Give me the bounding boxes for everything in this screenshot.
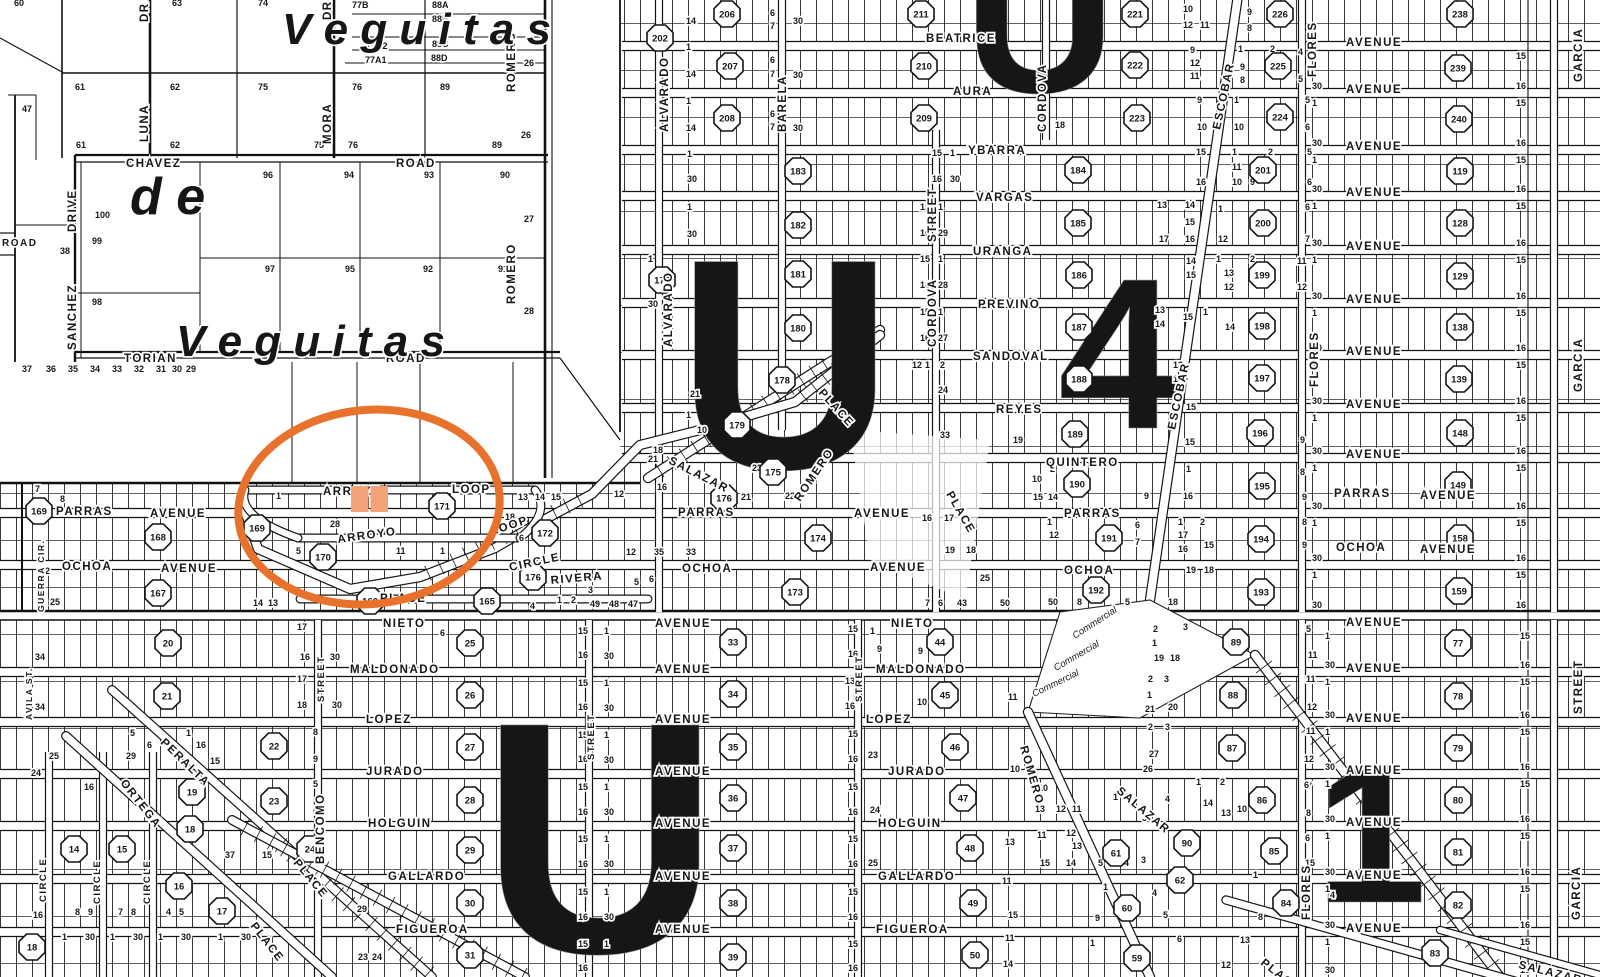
lot-number: 18 bbox=[1204, 565, 1214, 575]
lot-number: 37 bbox=[225, 850, 235, 860]
lot-number: 6 bbox=[770, 8, 775, 18]
block-number-badge: 62 bbox=[1167, 867, 1193, 893]
block-corner-lot-number: 15 bbox=[1516, 155, 1526, 165]
street-name-label: AVENUE bbox=[854, 508, 910, 520]
lot-number: 23 bbox=[358, 952, 368, 962]
lot-number: 1 bbox=[686, 42, 691, 52]
lot-number: 1 bbox=[686, 410, 691, 420]
block-corner-lot-number: 16 bbox=[1516, 238, 1526, 248]
block-number: 119 bbox=[1452, 166, 1467, 177]
block-number-badge: 172 bbox=[532, 520, 558, 546]
lot-number: 1 bbox=[1218, 204, 1223, 214]
street-name-label: FIGUEROA bbox=[396, 924, 469, 936]
block-number: 88 bbox=[1228, 690, 1239, 701]
lot-number: 15 bbox=[920, 254, 930, 264]
lot-number: 15 bbox=[1185, 437, 1195, 447]
lot-number: 15 bbox=[1185, 217, 1195, 227]
block-number-badge: 46 bbox=[942, 734, 968, 760]
block-number: 86 bbox=[1257, 795, 1268, 806]
lot-number: 25 bbox=[980, 573, 990, 583]
lot-number: 30 bbox=[330, 652, 340, 662]
block-number: 48 bbox=[965, 843, 976, 854]
lot-number: 15 bbox=[1186, 402, 1196, 412]
block-number-badge: 185 bbox=[1065, 210, 1091, 236]
block-number: 169 bbox=[31, 506, 47, 517]
lot-number: 6 bbox=[1304, 780, 1309, 790]
block-corner-lot-number: 1 bbox=[1312, 518, 1317, 528]
street-name-label: AVENUE bbox=[655, 618, 711, 630]
lot-number: 3 bbox=[588, 585, 593, 595]
block-number: 14 bbox=[69, 844, 80, 855]
lot-number: 15 bbox=[1186, 270, 1196, 280]
lot-number: 9 bbox=[1240, 62, 1245, 72]
lot-number: 13 bbox=[1035, 804, 1045, 814]
lot-number: 15 bbox=[210, 756, 220, 766]
lot-number: 10 bbox=[917, 697, 927, 707]
lot-number: 24 bbox=[870, 805, 880, 815]
lot-number: 1 bbox=[938, 254, 943, 264]
street-name-label: MORA bbox=[322, 103, 334, 144]
block-number: 45 bbox=[940, 690, 951, 701]
lot-number: 61 bbox=[76, 140, 86, 150]
lot-number: 20 bbox=[1168, 702, 1178, 712]
lot-number: 9 bbox=[313, 754, 318, 764]
lot-number: 6 bbox=[147, 740, 152, 750]
block-corner-lot-number: 1 bbox=[1312, 570, 1317, 580]
lot-number: 5 bbox=[179, 907, 184, 917]
lot-number: 49 bbox=[590, 599, 600, 609]
lot-number: 5 bbox=[1305, 95, 1310, 105]
lot-number: 15 bbox=[848, 834, 858, 844]
lot-number: 3 bbox=[1141, 855, 1146, 865]
block-number-badge: 44 bbox=[927, 629, 953, 655]
block-corner-lot-number: 1 bbox=[1312, 98, 1317, 108]
lot-number: 31 bbox=[156, 364, 166, 374]
lot-number: 16 bbox=[33, 910, 43, 920]
lot-number: 2 bbox=[1148, 722, 1153, 732]
lot-number: 12 bbox=[1056, 804, 1066, 814]
lot-number: 12 bbox=[1049, 530, 1059, 540]
block-number: 193 bbox=[1253, 587, 1269, 598]
block-number: 208 bbox=[719, 113, 735, 124]
lot-number: 30 bbox=[133, 932, 143, 942]
lot-number: 14 bbox=[1155, 319, 1165, 329]
block-number-badge: 35 bbox=[720, 734, 746, 760]
street-name-label: DR bbox=[139, 2, 151, 22]
block-corner-lot-number: 1 bbox=[1325, 937, 1330, 947]
block-number: 189 bbox=[1067, 429, 1083, 440]
lot-number: 94 bbox=[344, 170, 354, 180]
block-number-badge: 178 bbox=[769, 367, 795, 393]
block-number-badge: 37 bbox=[720, 835, 746, 861]
lot-number: 1 bbox=[1178, 517, 1183, 527]
block-number-badge: 192 bbox=[1083, 577, 1109, 603]
block-number-badge: 26 bbox=[457, 682, 483, 708]
lot-number: 12 bbox=[1066, 828, 1076, 838]
block-number: 30 bbox=[465, 898, 476, 909]
block-number-badge: 139 bbox=[1446, 366, 1472, 392]
lot-number: 92 bbox=[423, 264, 433, 274]
lot-number: 75 bbox=[258, 82, 268, 92]
block-number: 200 bbox=[1255, 218, 1271, 229]
lot-number: 16 bbox=[848, 754, 858, 764]
block-number-badge: 197 bbox=[1249, 365, 1275, 391]
lot-number: 9 bbox=[1302, 492, 1307, 502]
block-number: 211 bbox=[913, 9, 929, 20]
lot-number: 1 bbox=[604, 678, 609, 688]
block-number: 240 bbox=[1451, 114, 1467, 125]
lot-number: 32 bbox=[134, 364, 144, 374]
block-number: 138 bbox=[1452, 322, 1468, 333]
lot-number: 16 bbox=[578, 963, 588, 973]
lot-number: 89 bbox=[492, 140, 502, 150]
block-corner-lot-number: 15 bbox=[1516, 463, 1526, 473]
lot-number: 8 bbox=[131, 907, 136, 917]
lot-number: 9 bbox=[1247, 7, 1252, 17]
lot-number: 5 bbox=[1298, 74, 1303, 84]
lot-number: 47 bbox=[22, 104, 32, 114]
lot-number: 33 bbox=[940, 430, 950, 440]
block-number: 33 bbox=[728, 637, 739, 648]
block-number: 27 bbox=[465, 742, 476, 753]
block-corner-lot-number: 16 bbox=[1516, 446, 1526, 456]
block-corner-lot-number: 15 bbox=[1516, 360, 1526, 370]
block-number: 79 bbox=[1453, 743, 1464, 754]
lot-number: 30 bbox=[604, 755, 614, 765]
block-number-badge: 129 bbox=[1447, 263, 1473, 289]
lot-number: 5 bbox=[130, 728, 135, 738]
lot-number: 30 bbox=[181, 932, 191, 942]
tract-name-script: V e g u i t a s bbox=[176, 317, 445, 366]
street-name-label: AVENUE bbox=[655, 714, 711, 726]
block-number: 171 bbox=[434, 501, 451, 512]
lot-number: 35 bbox=[68, 364, 78, 374]
lot-number: 23 bbox=[868, 750, 878, 760]
lot-number: 16 bbox=[578, 859, 588, 869]
street-name-label: BEATRICE bbox=[926, 33, 996, 45]
block-corner-lot-number: 30 bbox=[1312, 501, 1322, 511]
block-number-badge: 148 bbox=[1447, 420, 1473, 446]
lot-number: 17 bbox=[944, 513, 954, 523]
lot-number: 17 bbox=[1178, 530, 1188, 540]
lot-number: 16 bbox=[578, 702, 588, 712]
block-corner-lot-number: 1 bbox=[1325, 831, 1330, 841]
block-number: 176 bbox=[716, 493, 732, 504]
lot-number: 5 bbox=[1098, 858, 1103, 868]
block-number-badge: 174 bbox=[805, 525, 831, 551]
lot-number: 10 bbox=[1183, 4, 1193, 14]
street-name-label: PARRAS bbox=[678, 507, 735, 519]
street-name-label: AVENUE bbox=[1346, 617, 1402, 629]
block-corner-lot-number: 1 bbox=[1312, 201, 1317, 211]
street-name-label: PARRAS bbox=[1334, 488, 1391, 500]
street-name-label: STREET bbox=[854, 656, 865, 702]
lot-number: 4 bbox=[1152, 888, 1157, 898]
lot-number: 2 bbox=[571, 595, 576, 605]
lot-number: 15 bbox=[1196, 147, 1206, 157]
block-corner-lot-number: 30 bbox=[1325, 965, 1335, 975]
block-number-badge: 33 bbox=[720, 629, 746, 655]
block-number: 90 bbox=[1182, 838, 1193, 849]
block-corner-lot-number: 1 bbox=[1312, 308, 1317, 318]
lot-number: 16 bbox=[848, 859, 858, 869]
block-number-badge: 170 bbox=[310, 544, 336, 570]
lot-number: 5 bbox=[1306, 624, 1311, 634]
block-number: 61 bbox=[1111, 848, 1122, 859]
block-number: 81 bbox=[1453, 847, 1464, 858]
block-number-badge: 239 bbox=[1445, 55, 1471, 81]
block-number-badge: 186 bbox=[1066, 262, 1092, 288]
block-number-badge: 119 bbox=[1447, 158, 1473, 184]
lot-number: 19 bbox=[1154, 653, 1164, 663]
block-number: 178 bbox=[774, 375, 790, 386]
block-number-badge: 188 bbox=[1066, 366, 1092, 392]
block-number: 20 bbox=[163, 638, 174, 649]
lot-number: 19 bbox=[1186, 565, 1196, 575]
block-corner-lot-number: 15 bbox=[1520, 677, 1530, 687]
lot-number: 30 bbox=[85, 932, 95, 942]
block-corner-lot-number: 15 bbox=[1516, 98, 1526, 108]
block-number: 31 bbox=[465, 950, 476, 961]
block-number-badge: 88 bbox=[1220, 682, 1246, 708]
street-name-label: AVENUE bbox=[1346, 449, 1402, 461]
block-number: 47 bbox=[958, 793, 969, 804]
lot-number: 9 bbox=[1197, 95, 1202, 105]
block-corner-lot-number: 16 bbox=[1520, 660, 1530, 670]
lot-number: 27 bbox=[938, 333, 948, 343]
street-name-label: STREET bbox=[316, 656, 327, 702]
lot-number: 50 bbox=[1000, 598, 1010, 608]
highlighted-parcel bbox=[371, 486, 389, 512]
lot-number: 1 bbox=[1186, 464, 1191, 474]
lot-number: 13 bbox=[1224, 268, 1234, 278]
block-corner-lot-number: 30 bbox=[1312, 138, 1322, 148]
lot-number: 93 bbox=[424, 170, 434, 180]
block-corner-lot-number: 1 bbox=[1312, 155, 1317, 165]
lot-number: 7 bbox=[1305, 234, 1310, 244]
block-number-badge: 17 bbox=[209, 898, 235, 924]
lot-number: 16 bbox=[1185, 234, 1195, 244]
lot-number: 10 bbox=[1237, 804, 1247, 814]
lot-number: 1 bbox=[1152, 638, 1157, 648]
lot-number: 1 bbox=[1234, 95, 1239, 105]
block-number: 223 bbox=[1129, 113, 1145, 124]
block-corner-lot-number: 1 bbox=[1325, 884, 1330, 894]
block-number: 18 bbox=[185, 824, 196, 835]
lot-number: 14 bbox=[1185, 200, 1195, 210]
lot-number: 11 bbox=[1306, 726, 1316, 736]
block-number-badge: 221 bbox=[1122, 1, 1148, 27]
block-number-badge: 22 bbox=[261, 733, 287, 759]
lot-number: 34 bbox=[35, 702, 45, 712]
lot-number: 11 bbox=[1232, 162, 1242, 172]
lot-number: 30 bbox=[604, 859, 614, 869]
lot-number: 4 bbox=[1165, 794, 1170, 804]
lot-number: 10 bbox=[1197, 122, 1207, 132]
lot-number: 13 bbox=[268, 598, 278, 608]
lot-number: 1 bbox=[276, 491, 281, 501]
lot-number: 30 bbox=[793, 70, 803, 80]
lot-number: 16 bbox=[300, 652, 310, 662]
block-number-badge: 194 bbox=[1248, 526, 1274, 552]
block-number: 49 bbox=[968, 898, 979, 909]
lot-number: 2 bbox=[1200, 517, 1205, 527]
street-name-label: MALDONADO bbox=[876, 664, 966, 676]
lot-number: 1 bbox=[604, 626, 609, 636]
block-number-badge: 159 bbox=[1446, 578, 1472, 604]
block-number-badge: 27 bbox=[457, 734, 483, 760]
lot-number: 18 bbox=[1170, 653, 1180, 663]
lot-number: 7 bbox=[770, 69, 775, 79]
lot-number: 100 bbox=[95, 210, 110, 220]
lot-number: 28 bbox=[524, 306, 534, 316]
street-name-label: REYES bbox=[996, 404, 1043, 416]
lot-number: 15 bbox=[578, 678, 588, 688]
block-number: 129 bbox=[1452, 271, 1468, 282]
lot-number: 21 bbox=[1145, 704, 1155, 714]
lot-number: 30 bbox=[950, 174, 960, 184]
street-name-label: AVENUE bbox=[1346, 765, 1402, 777]
street-name-label: GARCIA bbox=[1573, 28, 1585, 82]
block-corner-lot-number: 30 bbox=[1325, 710, 1335, 720]
lot-number: 11 bbox=[1072, 804, 1082, 814]
block-number: 190 bbox=[1069, 479, 1085, 490]
street-name-label: LOPEZ bbox=[366, 714, 412, 726]
lot-number: 2 bbox=[1250, 254, 1255, 264]
block-number: 185 bbox=[1070, 218, 1087, 229]
map-canvas: U4U1U 60637477B88A88B77A288C77A188D26616… bbox=[0, 0, 1600, 977]
block-number: 179 bbox=[729, 420, 745, 431]
lot-number: 16 bbox=[1178, 544, 1188, 554]
street-name-label: ROAD bbox=[2, 238, 37, 249]
block-number: 77 bbox=[1453, 638, 1464, 649]
lot-number: 15 bbox=[578, 834, 588, 844]
block-number-badge: 211 bbox=[908, 1, 934, 27]
block-number-badge: 85 bbox=[1261, 838, 1287, 864]
lot-number: 1 bbox=[925, 360, 930, 370]
block-number-badge: 84 bbox=[1273, 890, 1299, 916]
street-name-label: SANCHEZ bbox=[67, 284, 79, 350]
block-number-badge: 173 bbox=[782, 579, 808, 605]
block-number-badge: 223 bbox=[1124, 105, 1150, 131]
block-corner-lot-number: 15 bbox=[1520, 937, 1530, 947]
lot-number: 13 bbox=[1005, 837, 1015, 847]
block-number-badge: 168 bbox=[145, 524, 171, 550]
block-number-badge: 80 bbox=[1445, 787, 1471, 813]
block-number: 186 bbox=[1071, 270, 1087, 281]
lot-number: 24 bbox=[372, 952, 382, 962]
block-number-badge: 224 bbox=[1267, 104, 1293, 130]
lot-number: 16 bbox=[1183, 491, 1193, 501]
street-name-label: GUERRA CIR. bbox=[36, 540, 46, 612]
lot-number: 7 bbox=[770, 122, 775, 132]
block-number: 221 bbox=[1127, 9, 1144, 20]
lot-number: 1 bbox=[1253, 870, 1258, 880]
street-name-label: OCHOA bbox=[1064, 565, 1114, 577]
lot-number: 15 bbox=[1040, 858, 1050, 868]
lot-number: 15 bbox=[1033, 492, 1043, 502]
block-corner-lot-number: 30 bbox=[1325, 920, 1335, 930]
lot-number: 30 bbox=[687, 229, 697, 239]
block-number: 139 bbox=[1451, 374, 1467, 385]
lot-number: 5 bbox=[1125, 597, 1130, 607]
street-name-label: AVENUE bbox=[870, 562, 926, 574]
block-corner-lot-number: 30 bbox=[1312, 396, 1322, 406]
lot-number: 30 bbox=[793, 123, 803, 133]
lot-number: 26 bbox=[1143, 764, 1153, 774]
lot-number: 37 bbox=[22, 364, 32, 374]
block-corner-lot-number: 16 bbox=[1516, 343, 1526, 353]
lot-number: 1 bbox=[1103, 882, 1108, 892]
block-number-badge: 128 bbox=[1447, 210, 1473, 236]
block-number-badge: 183 bbox=[785, 158, 811, 184]
street-name-label: OCHOA bbox=[62, 561, 112, 573]
lot-number: 1 bbox=[687, 149, 692, 159]
lot-number: 25 bbox=[50, 597, 60, 607]
street-name-label: FIGUEROA bbox=[876, 924, 949, 936]
block-number-badge: 18 bbox=[177, 816, 203, 842]
lot-number: 5 bbox=[296, 546, 301, 556]
lot-number: 12 bbox=[1221, 960, 1231, 970]
block-number: 25 bbox=[465, 638, 476, 649]
street-name-label: CIRCLE bbox=[92, 860, 103, 904]
street-name-label: CORDOVA bbox=[1037, 64, 1049, 132]
block-number: 39 bbox=[728, 952, 739, 963]
street-name-label: STREET bbox=[586, 714, 597, 760]
block-number-badge: 198 bbox=[1249, 313, 1275, 339]
street-name-label: JURADO bbox=[888, 766, 946, 778]
block-number-badge: 14 bbox=[61, 836, 87, 862]
lot-number: 89 bbox=[440, 82, 450, 92]
block-number-badge: 89 bbox=[1223, 629, 1249, 655]
street-name-label: AVILA ST. bbox=[24, 667, 34, 720]
block-corner-lot-number: 16 bbox=[1516, 396, 1526, 406]
lot-number: 35 bbox=[654, 547, 664, 557]
lot-number: 11 bbox=[1306, 674, 1316, 684]
lot-number: 21 bbox=[741, 492, 751, 502]
tract-name-script: d e bbox=[130, 168, 205, 226]
lot-number: 8 bbox=[1240, 75, 1245, 85]
street-name-label: ALVARADO bbox=[659, 57, 671, 132]
lot-number: 88D bbox=[431, 53, 448, 63]
lot-number: 1 bbox=[1216, 254, 1221, 264]
block-number: 89 bbox=[1231, 637, 1242, 648]
street-name-label: AVENUE bbox=[1346, 870, 1402, 882]
block-corner-lot-number: 30 bbox=[1325, 762, 1335, 772]
lot-number: 13 bbox=[1072, 841, 1082, 851]
block-corner-lot-number: 1 bbox=[1325, 779, 1330, 789]
lot-number: 16 bbox=[84, 782, 94, 792]
block-number: 26 bbox=[465, 690, 476, 701]
block-number-badge: 190 bbox=[1064, 471, 1090, 497]
street-name-label: DRIVE bbox=[67, 189, 79, 232]
lot-number: 7 bbox=[1135, 537, 1140, 547]
lot-number: 95 bbox=[345, 264, 355, 274]
block-number-badge: 165 bbox=[474, 588, 500, 614]
lot-number: 18 bbox=[966, 545, 976, 555]
lot-number: 5 bbox=[1163, 910, 1168, 920]
lot-number: 10 bbox=[1032, 474, 1042, 484]
block-corner-lot-number: 16 bbox=[1520, 814, 1530, 824]
lot-number: 30 bbox=[793, 16, 803, 26]
lot-number: 14 bbox=[1048, 492, 1058, 502]
lot-number: 9 bbox=[877, 644, 882, 654]
block-number-badge: 182 bbox=[785, 212, 811, 238]
block-number: 183 bbox=[790, 166, 806, 177]
block-corner-lot-number: 15 bbox=[1520, 631, 1530, 641]
lot-number: 19 bbox=[1013, 435, 1023, 445]
lot-number: 77A1 bbox=[365, 55, 387, 65]
